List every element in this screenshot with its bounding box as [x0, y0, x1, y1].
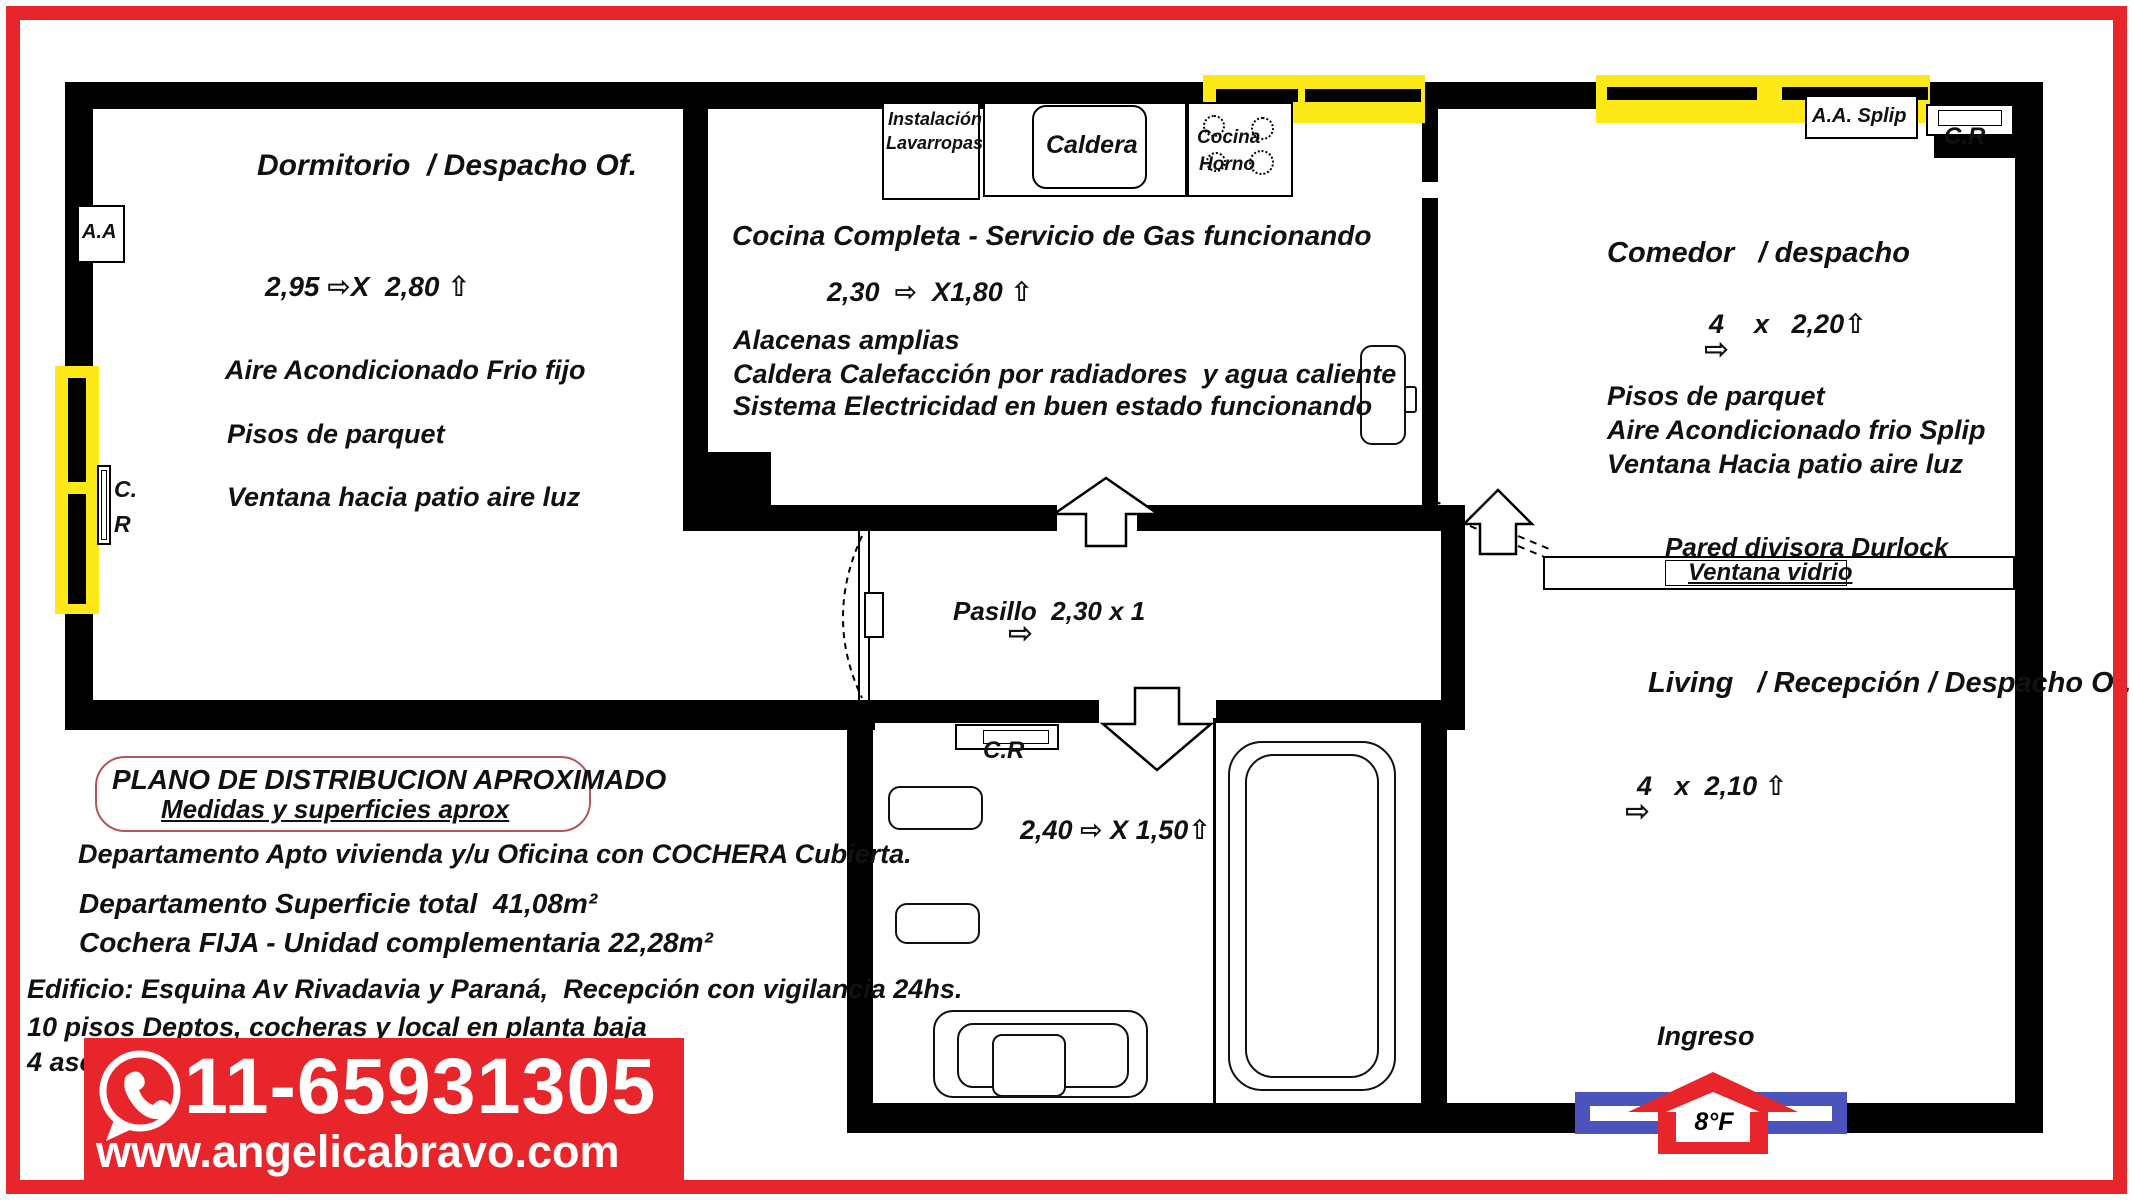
living-dimensions: 4 x 2,10 ⇧	[1637, 772, 1787, 800]
door-arrow-kitchen-icon	[1050, 474, 1162, 550]
website-url: www.angelicabravo.com	[96, 1126, 620, 1178]
phone-number: 11-65931305	[184, 1040, 656, 1132]
living-direction-arrow: ⇨	[1625, 796, 1650, 828]
wall-bottom-left	[847, 1103, 1575, 1133]
radiator-bath-label: C.R	[983, 738, 1024, 763]
pasillo-label: Pasillo 2,30 x 1	[953, 598, 1145, 625]
comedor-title: Comedor / despacho	[1607, 238, 1910, 268]
window-kitchen-sash-icon	[1305, 89, 1421, 102]
dormitorio-dimensions: 2,95 ⇨X 2,80 ⇧	[265, 272, 471, 301]
wall-kitchen-bottom-right	[1137, 505, 1441, 531]
comedor-feature: Pisos de parquet	[1607, 382, 1825, 410]
comedor-direction-arrow: ⇨	[1704, 334, 1729, 366]
washer-label2: Lavarropas	[886, 134, 983, 153]
window-left-sash-icon	[68, 378, 86, 482]
partition-window-label: Ventana vidrio	[1688, 560, 1852, 585]
comedor-feature: Ventana Hacia patio aire luz	[1607, 450, 1963, 478]
kitchen-feature: Sistema Electricidad en buen estado func…	[733, 392, 1372, 420]
dormitorio-feature: Aire Acondicionado Frio fijo	[225, 356, 586, 384]
kitchen-title: Cocina Completa - Servicio de Gas funcio…	[732, 221, 1371, 250]
info-line: Cochera FIJA - Unidad complementaria 22,…	[79, 928, 713, 957]
pasillo-door-swing-icon	[818, 530, 864, 704]
wall-bath-top-right	[1216, 700, 1441, 723]
window-comedor-sash-icon	[1607, 87, 1757, 100]
dormitorio-title: Dormitorio / Despacho Of.	[257, 150, 637, 182]
radiator-left-inner-icon	[101, 470, 107, 540]
bidet-icon	[888, 786, 983, 830]
comedor-dimensions: 4 x 2,20⇧	[1709, 310, 1867, 338]
living-title: Living / Recepción / Despacho Of.	[1648, 668, 2131, 698]
stove-box	[1187, 102, 1293, 197]
wall-bottom-right	[1845, 1103, 2043, 1133]
pasillo-door-handle-icon	[864, 592, 884, 638]
kitchen-feature: Caldera Calefacción por radiadores y agu…	[733, 360, 1396, 388]
bath-dimensions: 2,40 ⇨ X 1,50⇧	[1020, 816, 1211, 844]
radiator-comedor-label: C.R	[1944, 124, 1985, 149]
ac-unit-label: A.A	[82, 222, 116, 243]
door-arrow-bathroom-icon	[1095, 686, 1219, 772]
window-left-sash-icon	[68, 494, 86, 604]
wall-right	[2015, 82, 2043, 1133]
kitchen-feature: Alacenas amplias	[733, 326, 960, 354]
plano-title: PLANO DE DISTRIBUCION APROXIMADO	[112, 765, 666, 794]
radiator-left-label2: R	[114, 512, 131, 536]
stove-label2: Horno	[1199, 155, 1255, 175]
info-line: Departamento Apto vivienda y/u Oficina c…	[78, 840, 912, 868]
plano-subtitle: Medidas y superficies aprox	[161, 796, 509, 823]
floor-plan: A.A C. R Dormitorio / Despacho Of. 2,95 …	[0, 0, 2133, 1200]
boiler-label: Caldera	[1046, 132, 1138, 158]
unit-number-label: 8°F	[1678, 1108, 1750, 1137]
wall-dormitorio-kitchen	[683, 82, 708, 452]
wall-kitchen-right-lower	[1422, 198, 1438, 507]
kitchen-dimensions: 2,30 ⇨ X1,80 ⇧	[827, 278, 1033, 306]
wall-kitchen-bottom-left	[683, 505, 1057, 531]
toilet-icon	[895, 903, 980, 944]
pasillo-direction-arrow: ⇨	[1008, 618, 1033, 650]
tub-divider-line	[1213, 718, 1216, 1103]
sink-basin-icon	[992, 1034, 1066, 1097]
radiator-left-label: C.	[114, 477, 137, 501]
washer-label1: Instalación	[888, 110, 982, 129]
window-kitchen-sash-icon	[1216, 89, 1298, 102]
dormitorio-feature: Pisos de parquet	[227, 420, 445, 448]
stove-label1: Cocina	[1197, 128, 1260, 148]
ac-split-label: A.A. Splip	[1812, 106, 1906, 127]
ingreso-label: Ingreso	[1657, 1022, 1755, 1050]
info-line: Edificio: Esquina Av Rivadavia y Paraná,…	[27, 975, 962, 1003]
comedor-feature: Aire Acondicionado frio Splip	[1607, 416, 1986, 444]
bathtub-inner-icon	[1245, 754, 1379, 1078]
dormitorio-feature: Ventana hacia patio aire luz	[227, 483, 580, 511]
fridge-handle-icon	[1404, 386, 1417, 413]
wall-bath-top-left	[875, 700, 1099, 723]
wall-bath-right	[1421, 700, 1447, 1133]
wall-bath-left	[847, 700, 873, 1133]
wall-dormitorio-bottom	[65, 700, 875, 730]
info-line: Departamento Superficie total 41,08m²	[79, 889, 597, 918]
door-arrow-comedor-icon	[1460, 486, 1536, 558]
